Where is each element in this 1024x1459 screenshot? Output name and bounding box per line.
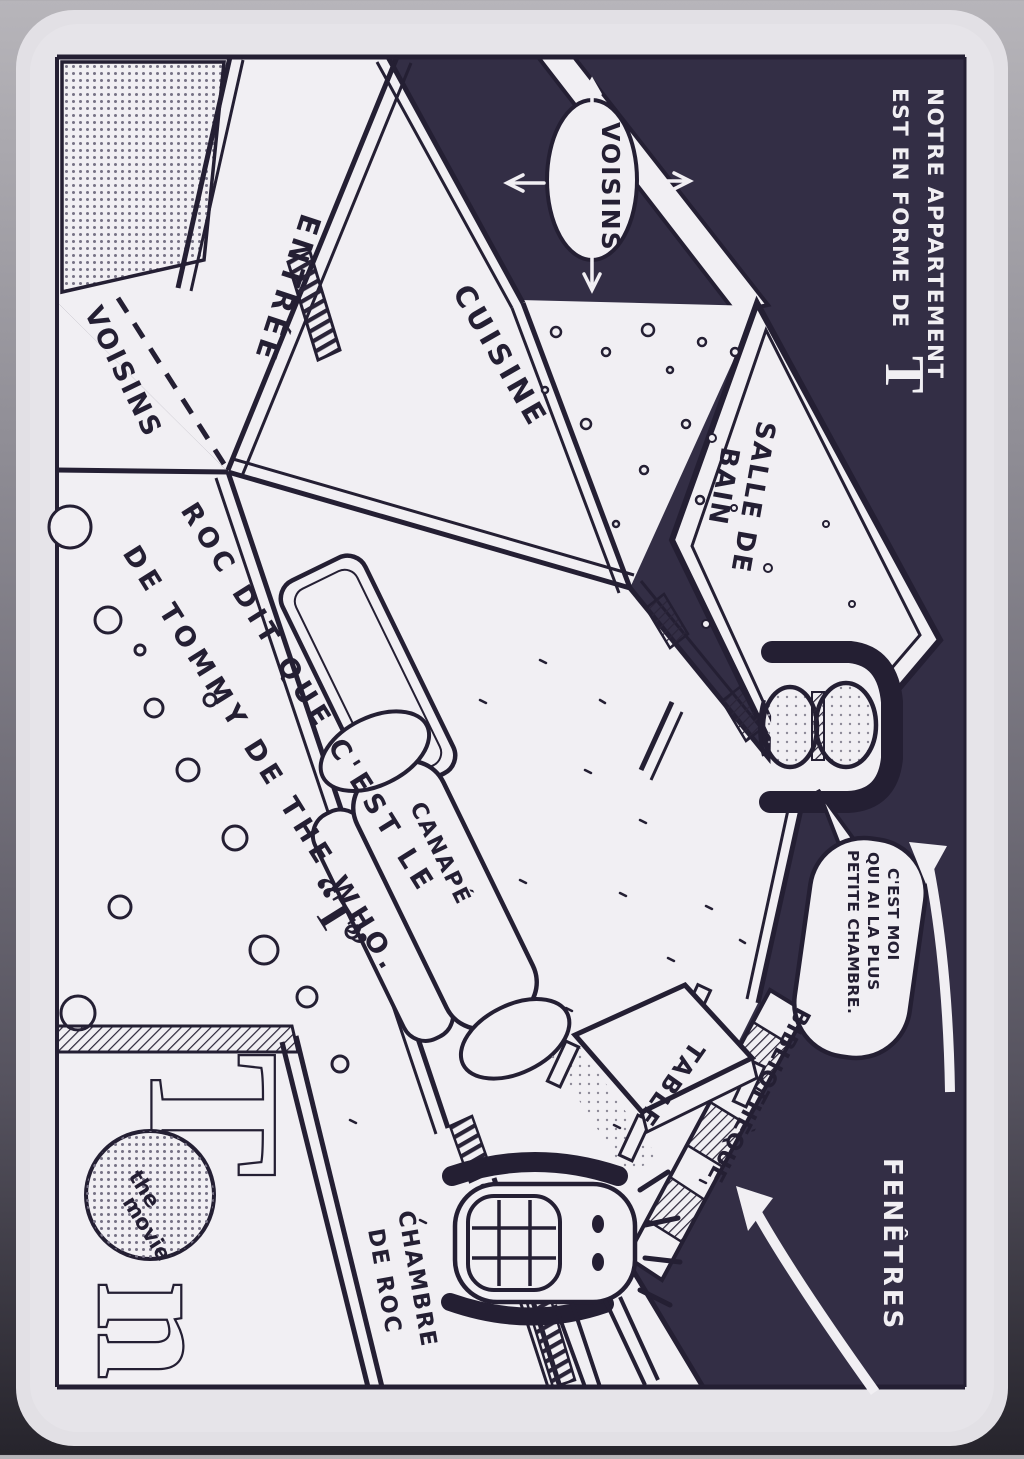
roommate-head	[760, 652, 892, 802]
speech-line-1: C'EST MOI	[884, 868, 902, 961]
page-title-line-1: NOTRE APPARTEMENT	[922, 88, 947, 380]
speech-line-3: PETITE CHAMBRE.	[844, 850, 862, 1014]
comic-page: CANAPÉ TABLE T the movie n	[0, 0, 1024, 1455]
page-title-line-2: EST EN FORME DE	[887, 88, 912, 329]
neighbors-bubble: VOISINS	[547, 100, 637, 260]
speech-line-2: QUI AI LA PLUS	[864, 852, 882, 991]
windows-label: FENÊTRES	[877, 1158, 909, 1331]
poster-letter-n: n	[62, 1281, 256, 1378]
glasses-lens-left	[763, 687, 817, 767]
page-title-letter-t: T	[873, 356, 935, 393]
neighbors-bubble-label: VOISINS	[596, 122, 625, 252]
